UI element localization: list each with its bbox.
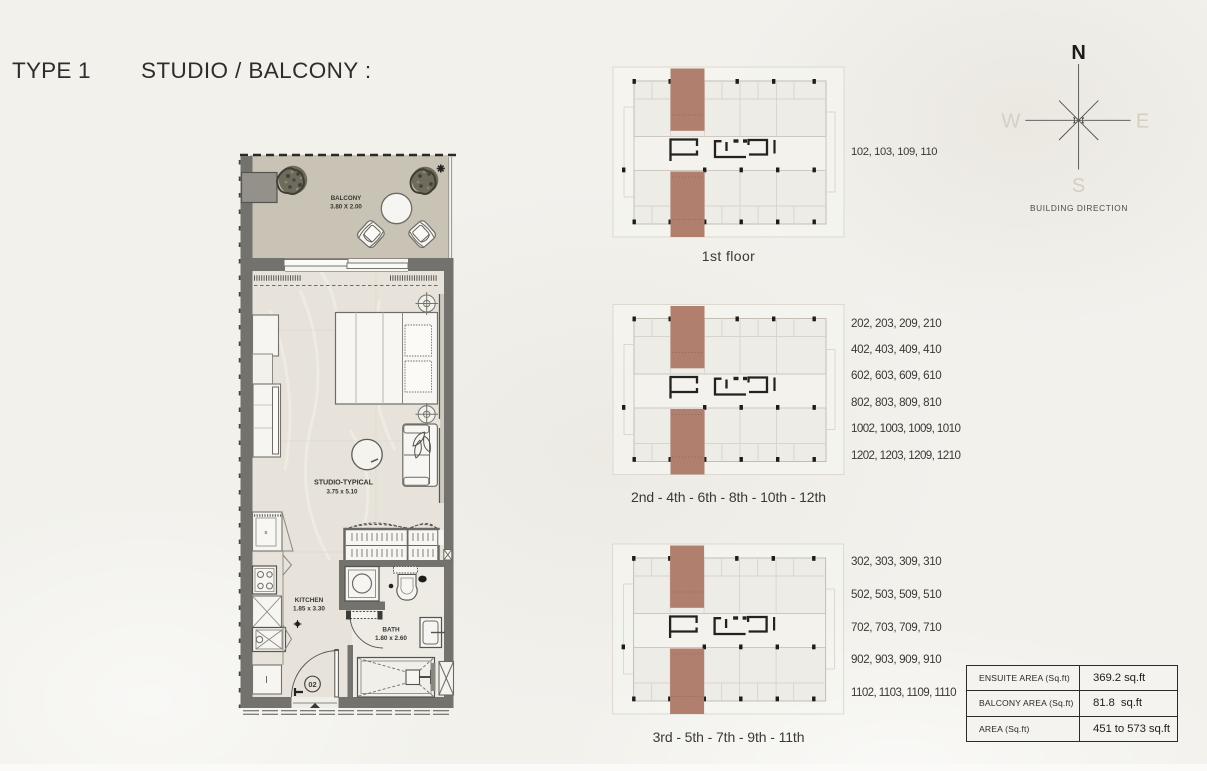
svg-text:1.85 x 3.30: 1.85 x 3.30 [293, 606, 325, 613]
svg-text:N: N [1071, 42, 1085, 64]
svg-text:B: B [264, 530, 267, 535]
svg-text:KITCHEN: KITCHEN [295, 597, 324, 604]
svg-text:STUDIO-TYPICAL: STUDIO-TYPICAL [314, 478, 374, 487]
svg-text:BALCONY: BALCONY [331, 195, 362, 202]
svg-text:02: 02 [308, 680, 316, 689]
svg-text:BATH: BATH [382, 627, 400, 634]
svg-text:1.80 x 2.60: 1.80 x 2.60 [375, 635, 407, 642]
svg-text:BUILDING DIRECTION: BUILDING DIRECTION [1030, 203, 1128, 213]
svg-text:W: W [1002, 111, 1021, 133]
svg-text:3.80 X 2.00: 3.80 X 2.00 [330, 204, 362, 211]
svg-text:E: E [1136, 111, 1149, 133]
svg-text:3.75 x 5.10: 3.75 x 5.10 [327, 489, 359, 496]
svg-text:S: S [1072, 175, 1085, 197]
